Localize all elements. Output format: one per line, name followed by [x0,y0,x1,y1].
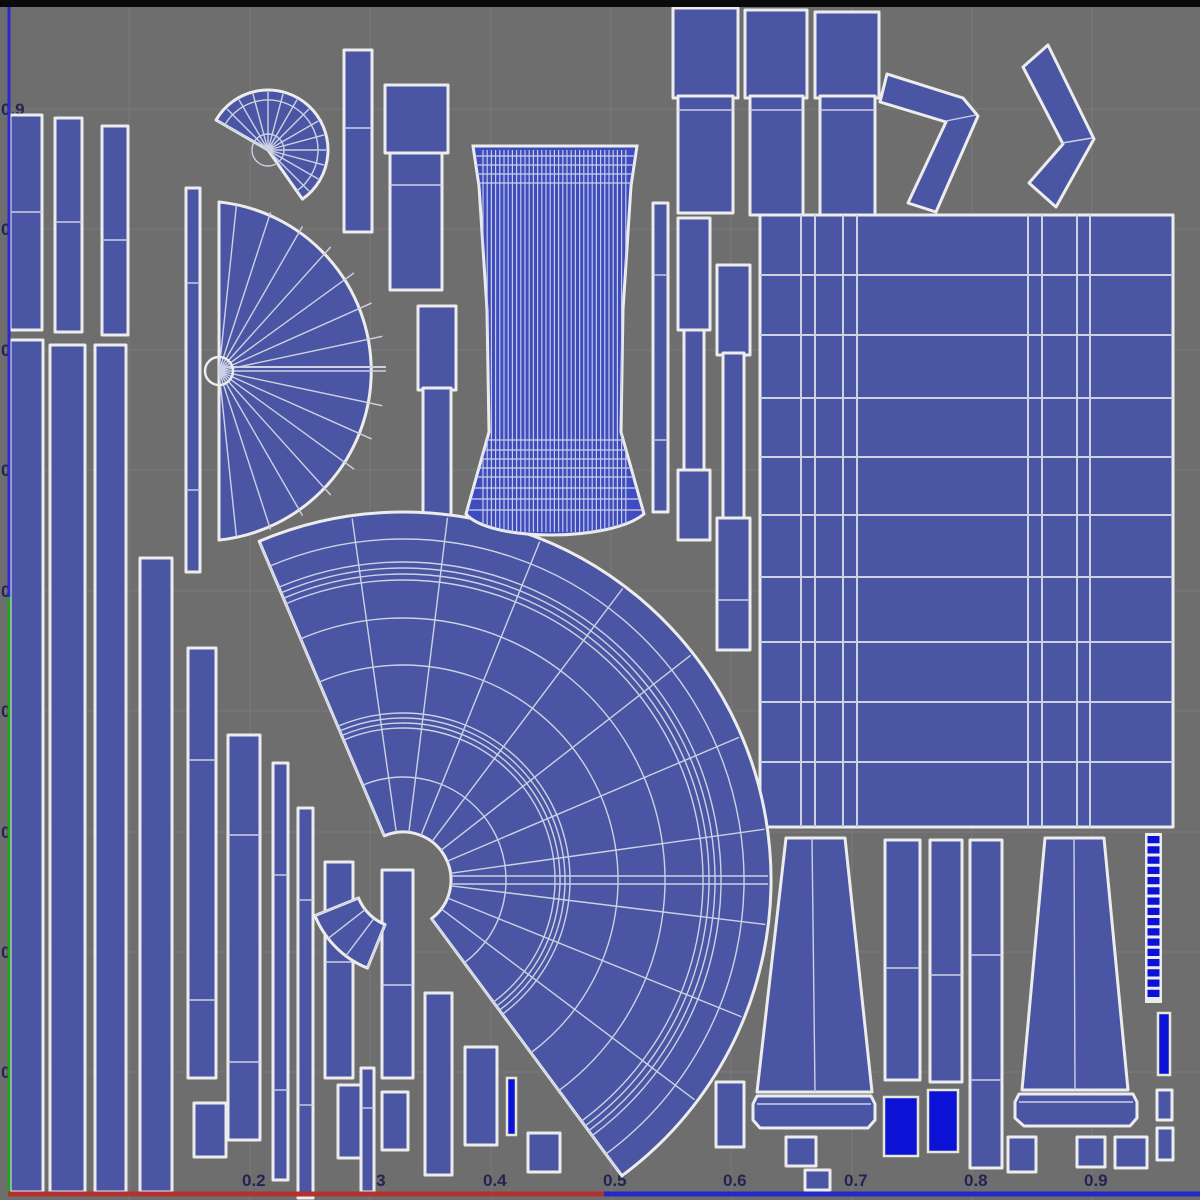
uv-island-bright-bar [884,1097,918,1156]
uv-island-bar [717,518,750,650]
uv-island-bar [385,85,448,153]
uv-island-bar [10,115,42,330]
uv-island-bar [194,1103,226,1157]
uv-island-bar [750,96,803,215]
uv-island-bar [50,345,85,1192]
uv-island-bar [678,470,710,540]
u-axis-tick-label: 0.4 [483,1171,507,1190]
uv-editor-window: 0.90.80.70.60.50.40.30.20.10.20.30.40.50… [0,0,1200,1200]
uv-island-grid-rect [760,215,1173,827]
uv-island-bar [1077,1137,1105,1167]
u-axis-tick-label: 0.9 [1084,1171,1108,1190]
uv-island-poly [1015,1094,1137,1126]
u-axis-tick-label: 0.6 [723,1171,747,1190]
uv-island-poly [753,1096,875,1128]
uv-island-bar [228,735,260,1140]
uv-island-bar [684,330,704,470]
uv-island-bar [673,8,738,98]
uv-island-bright-bar [507,1078,516,1135]
uv-island-bar [1157,1128,1173,1160]
uv-island-bar [678,218,710,330]
uv-island-bar [1008,1137,1036,1172]
uv-island-bar [140,558,172,1192]
uv-island-bar [298,808,313,1198]
uv-island-bar [528,1133,560,1172]
u-axis-tick-label: 0.2 [242,1171,266,1190]
uv-island-bar [717,265,750,355]
uv-island-bar [418,306,456,390]
uv-island-bar [678,96,733,213]
uv-island-bar [382,1092,408,1150]
uv-island-bar [885,840,920,1080]
uv-island-bar [805,1170,830,1190]
uv-island-bar [930,840,962,1082]
uv-island-bar [716,1082,744,1147]
uv-editor-canvas[interactable]: 0.90.80.70.60.50.40.30.20.10.20.30.40.50… [0,0,1200,1200]
uv-island-bar [423,388,451,520]
uv-island-bar [1115,1137,1147,1168]
uv-island-bar [186,188,200,572]
u-axis-tick-label: 0.8 [964,1171,988,1190]
uv-island-bar [653,203,668,512]
uv-island-bar [970,840,1002,1168]
uv-island-bar [382,870,413,1078]
uv-island-bright-bar [1158,1013,1170,1075]
uv-island-bar [188,648,216,1078]
uv-island-bar [723,353,744,520]
uv-island-bar [815,12,879,98]
uv-island-bar [273,763,288,1180]
uv-island-bar [361,1068,374,1192]
uv-island-bar [95,345,126,1192]
uv-island-bar [425,993,452,1175]
uv-island-bar [1157,1090,1172,1120]
uv-island-bright-bar [928,1090,958,1152]
top-black-bar [0,0,1200,7]
uv-island-bar [390,153,442,290]
uv-island-bar [325,862,353,1078]
uv-island-bar [786,1137,816,1166]
u-axis-tick-label: 0.7 [844,1171,868,1190]
uv-island-bar [344,50,372,232]
uv-island-bar [745,10,807,98]
uv-island-bar [465,1047,497,1145]
uv-island-bar [102,126,128,335]
uv-island-bar [55,118,82,332]
uv-island-bar [10,340,43,1192]
uv-island-bar [820,96,875,215]
